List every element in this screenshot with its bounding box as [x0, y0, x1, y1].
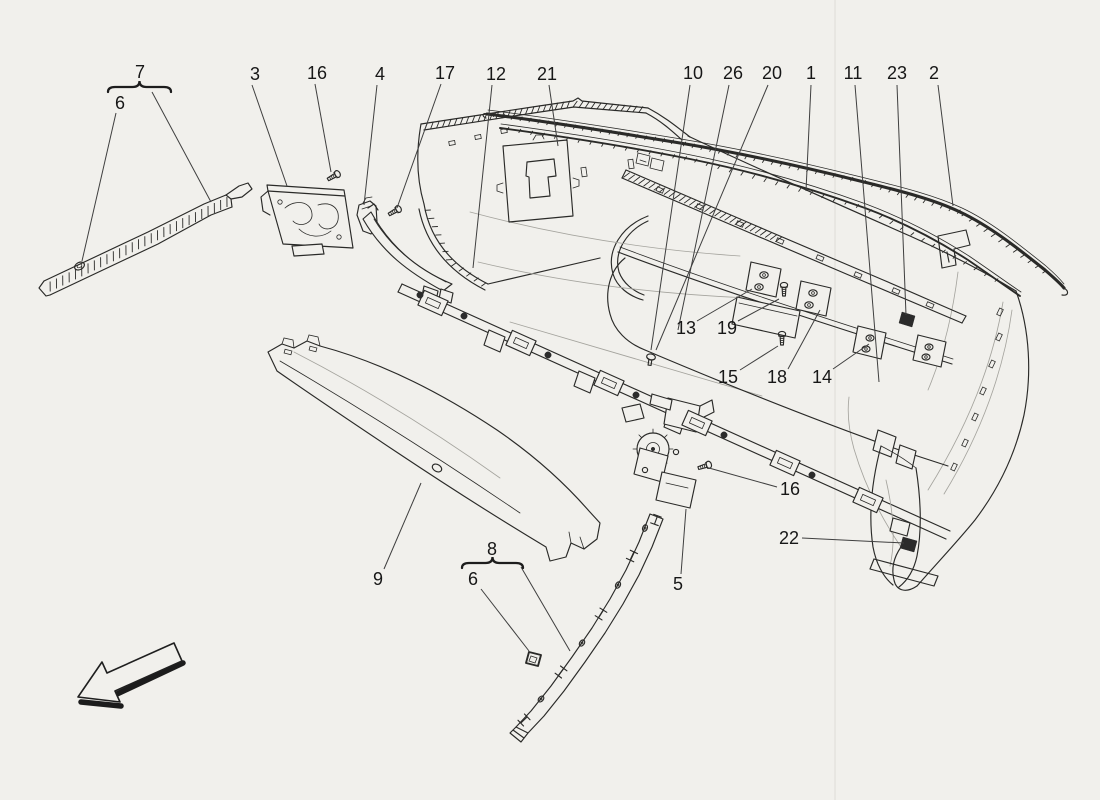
part-number-label: 19 — [717, 318, 737, 338]
skin-recess — [497, 135, 579, 222]
parts-diagram-canvas: 7631641712211026201112321319151814162259… — [0, 0, 1100, 800]
part-number-label: 18 — [767, 367, 787, 387]
part-number-label: 6 — [468, 569, 478, 589]
clip-plate-13 — [746, 262, 781, 297]
part-number-label: 9 — [373, 569, 383, 589]
part-number-label: 5 — [673, 574, 683, 594]
part-number-label: 1 — [806, 63, 816, 83]
part-number-label: 3 — [250, 64, 260, 84]
part-number-label: 21 — [537, 64, 557, 84]
part-number-label: 8 — [487, 539, 497, 559]
part-number-label: 15 — [718, 367, 738, 387]
part-number-label: 22 — [779, 528, 799, 548]
part-number-label: 16 — [780, 479, 800, 499]
part-number-label: 11 — [844, 63, 863, 83]
part-number-label: 4 — [375, 64, 385, 84]
part-number-label: 6 — [115, 93, 125, 113]
part-number-label: 26 — [723, 63, 743, 83]
paper-background — [0, 0, 1100, 800]
part-number-label: 23 — [887, 63, 907, 83]
part-number-label: 13 — [676, 318, 696, 338]
part-number-label: 7 — [135, 62, 145, 82]
part-number-label: 16 — [307, 63, 327, 83]
clip-plate-18 — [796, 281, 831, 316]
part-number-label: 14 — [812, 367, 832, 387]
part-number-label: 17 — [435, 63, 455, 83]
part-number-label: 20 — [762, 63, 782, 83]
part-number-label: 2 — [929, 63, 939, 83]
part-number-label: 12 — [486, 64, 506, 84]
part-number-label: 10 — [683, 63, 703, 83]
